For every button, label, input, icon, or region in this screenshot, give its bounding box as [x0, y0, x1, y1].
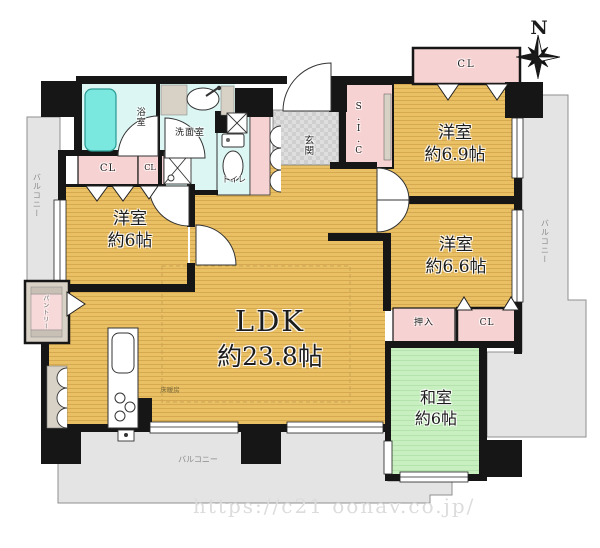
room-label-bedroom66: 洋室 約6.6帖: [392, 234, 520, 278]
column-bottom-left: [41, 428, 81, 464]
ldk-closet-doors: [57, 368, 67, 428]
room-name: 洋室: [75, 208, 185, 230]
room-label-toilet: トイレ: [217, 175, 251, 185]
label-cl-right: CL: [457, 318, 517, 330]
vanity-counter-right: [221, 86, 234, 115]
room-size: 約6帖: [75, 230, 185, 252]
floor-ldk-main: [190, 164, 385, 428]
hall-closet-strip: [250, 115, 270, 195]
label-cl-top: CL: [413, 58, 520, 71]
room-label-washitsu: 和室 約6帖: [390, 388, 482, 430]
compass-north-label: N: [527, 16, 551, 41]
room-label-ldk: LDK 約23.8帖: [170, 303, 370, 373]
label-oshiire: 押入: [393, 318, 455, 330]
room-name: 洋室: [392, 234, 520, 256]
label-cl-a: CL: [80, 162, 136, 175]
window-left: [54, 200, 66, 284]
label-floor-heating: 床暖房: [152, 386, 188, 394]
room-label-washroom: 洗面室: [166, 128, 214, 140]
label-balcony-bottom: バルコニー: [166, 455, 230, 465]
room-label-entrance: 玄関: [301, 121, 313, 169]
label-balcony-right: バルコニー: [539, 213, 549, 269]
pipe-space: [227, 113, 247, 133]
label-balcony-left: バルコニー: [31, 150, 41, 240]
room-name: 洋室: [390, 122, 520, 144]
room-size: 約6.6帖: [392, 256, 520, 278]
column-bottom-right: [485, 440, 522, 477]
entrance-storage-doors: [270, 126, 281, 192]
column-top-right: [505, 82, 543, 118]
watermark-text: https://c21 oonav.co.jp/: [193, 494, 475, 518]
column-top-left: [41, 81, 81, 117]
room-label-bath: 浴室: [133, 95, 145, 139]
washitsu-entry-gap: [384, 441, 392, 474]
label-sic: S.I.C: [352, 98, 364, 160]
floor-plan: N 洋室 約6.9帖 洋室 約6.6帖 洋室 約6帖 和室 約6帖 LDK 約2…: [0, 0, 600, 548]
room-label-bedroom69: 洋室 約6.9帖: [390, 122, 520, 166]
room-size: 約23.8帖: [170, 341, 370, 374]
balcony-tap: [118, 430, 134, 441]
room-label-bedroom6: 洋室 約6帖: [75, 208, 185, 252]
room-size: 約6帖: [390, 409, 482, 430]
kitchen-counter: [108, 328, 138, 428]
burner: [115, 393, 125, 403]
burner: [125, 402, 135, 412]
label-pantry: パントリー: [41, 294, 49, 330]
window-washitsu: [400, 472, 468, 482]
bathtub: [85, 89, 116, 151]
door-entry: [283, 63, 331, 111]
column-entry: [329, 76, 347, 112]
toilet-fixture: [222, 134, 244, 181]
column-bottom-mid: [241, 428, 281, 464]
window-bottom-2: [287, 422, 383, 433]
compass-icon: [516, 35, 560, 79]
window-bottom-1: [150, 422, 238, 433]
burner: [115, 411, 125, 421]
room-name: 和室: [390, 388, 482, 409]
room-size: 約6.9帖: [390, 144, 520, 166]
label-cl-b: CL: [138, 163, 162, 173]
kitchen-sink: [112, 333, 134, 373]
room-name: LDK: [170, 303, 370, 341]
vanity-counter: [161, 85, 187, 115]
